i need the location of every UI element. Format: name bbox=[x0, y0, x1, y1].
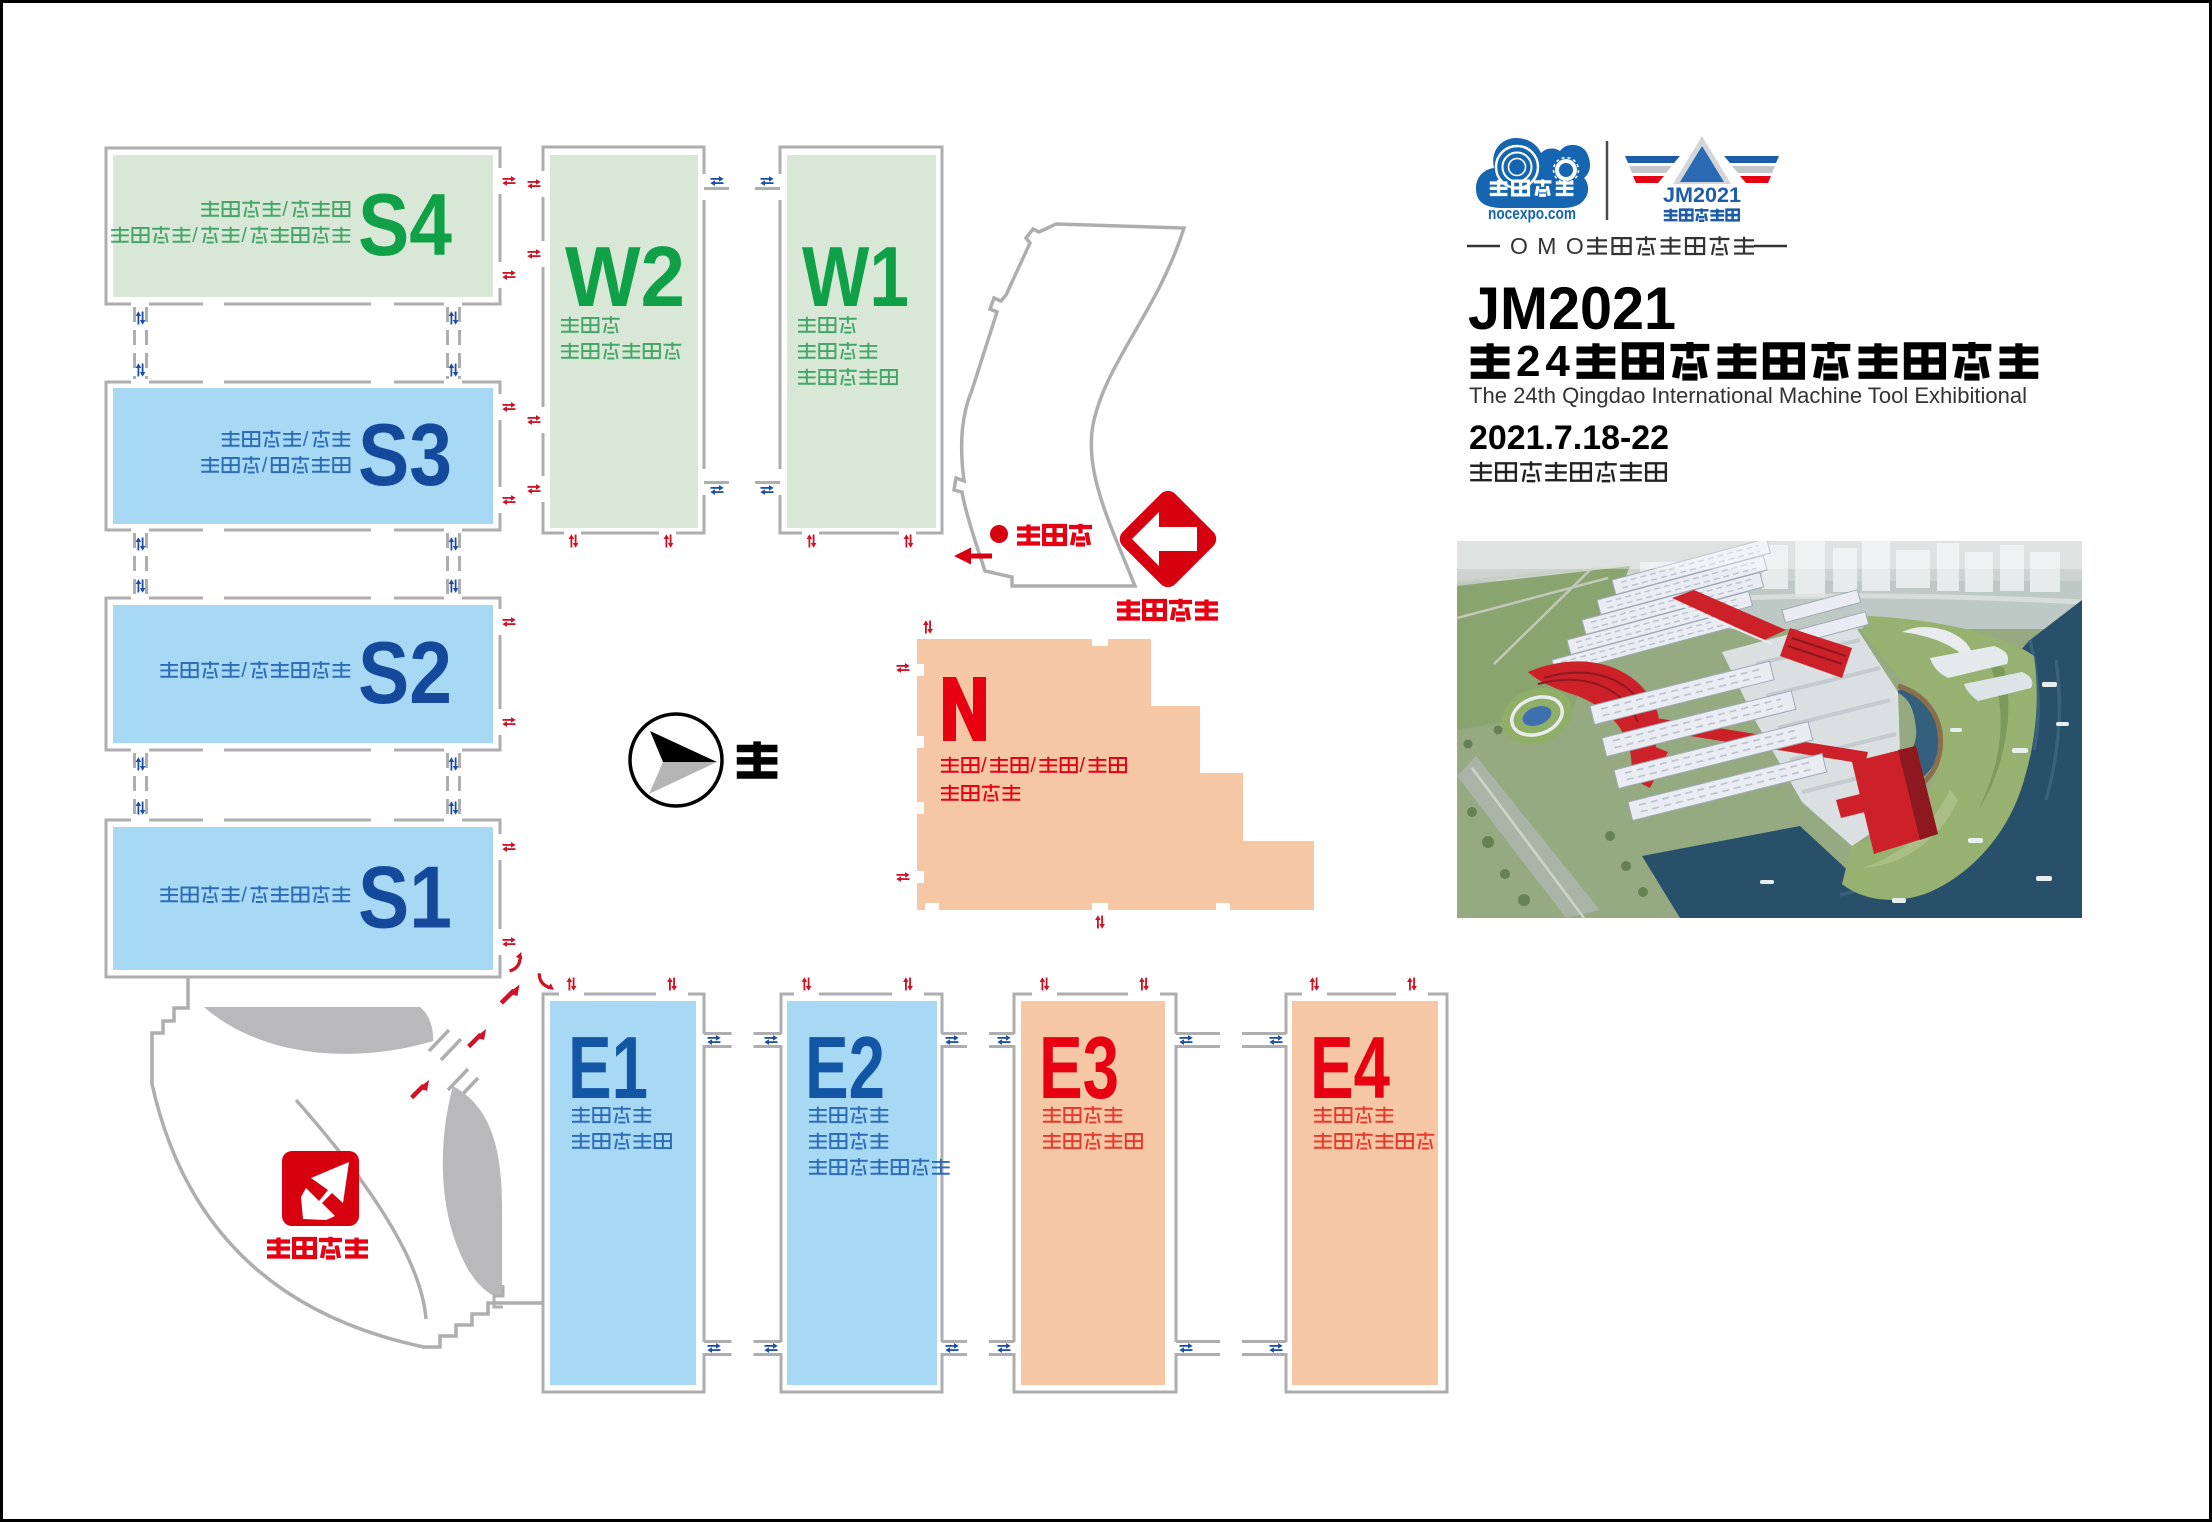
svg-text:JM2021: JM2021 bbox=[1663, 184, 1741, 207]
svg-text:JM2021: JM2021 bbox=[1468, 275, 1676, 342]
svg-text:/: / bbox=[241, 224, 247, 247]
svg-text:/: / bbox=[981, 754, 987, 777]
svg-text:The 24th Qingdao International: The 24th Qingdao International Machine T… bbox=[1469, 383, 2027, 408]
svg-text:/: / bbox=[262, 454, 268, 477]
svg-text:2021.7.18-22: 2021.7.18-22 bbox=[1469, 419, 1669, 457]
svg-text:/: / bbox=[303, 428, 309, 451]
svg-text:/: / bbox=[1030, 754, 1036, 777]
svg-text:E4: E4 bbox=[1310, 1018, 1390, 1117]
svg-text:nocexpo.com: nocexpo.com bbox=[1488, 205, 1576, 223]
svg-text:O M O: O M O bbox=[1510, 233, 1585, 259]
svg-text:/: / bbox=[241, 884, 247, 907]
svg-text:S1: S1 bbox=[358, 848, 452, 947]
svg-text:E1: E1 bbox=[568, 1018, 648, 1117]
svg-text:/: / bbox=[282, 198, 288, 221]
svg-text:S2: S2 bbox=[358, 623, 452, 722]
svg-text:E3: E3 bbox=[1039, 1018, 1119, 1117]
svg-text:S4: S4 bbox=[358, 175, 452, 274]
svg-text:2: 2 bbox=[1516, 337, 1540, 386]
svg-text:4: 4 bbox=[1545, 337, 1570, 386]
svg-text:/: / bbox=[241, 659, 247, 682]
svg-text:W2: W2 bbox=[565, 230, 685, 325]
svg-text:E2: E2 bbox=[805, 1018, 885, 1117]
svg-text:W1: W1 bbox=[802, 230, 909, 325]
svg-text:/: / bbox=[192, 224, 198, 247]
svg-text:/: / bbox=[1079, 754, 1085, 777]
svg-text:S3: S3 bbox=[358, 405, 452, 504]
